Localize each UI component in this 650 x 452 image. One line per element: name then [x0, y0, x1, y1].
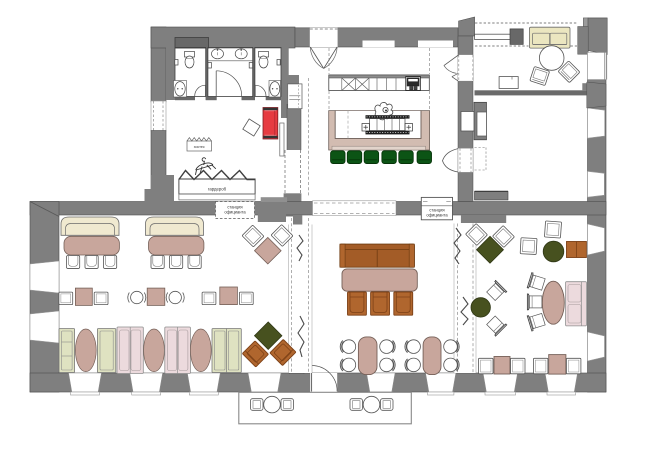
svg-text:хостес: хостес — [194, 145, 205, 149]
svg-text:гардероб: гардероб — [208, 187, 227, 192]
svg-text:официанта: официанта — [224, 209, 246, 214]
svg-text:официанта: официанта — [426, 213, 448, 218]
